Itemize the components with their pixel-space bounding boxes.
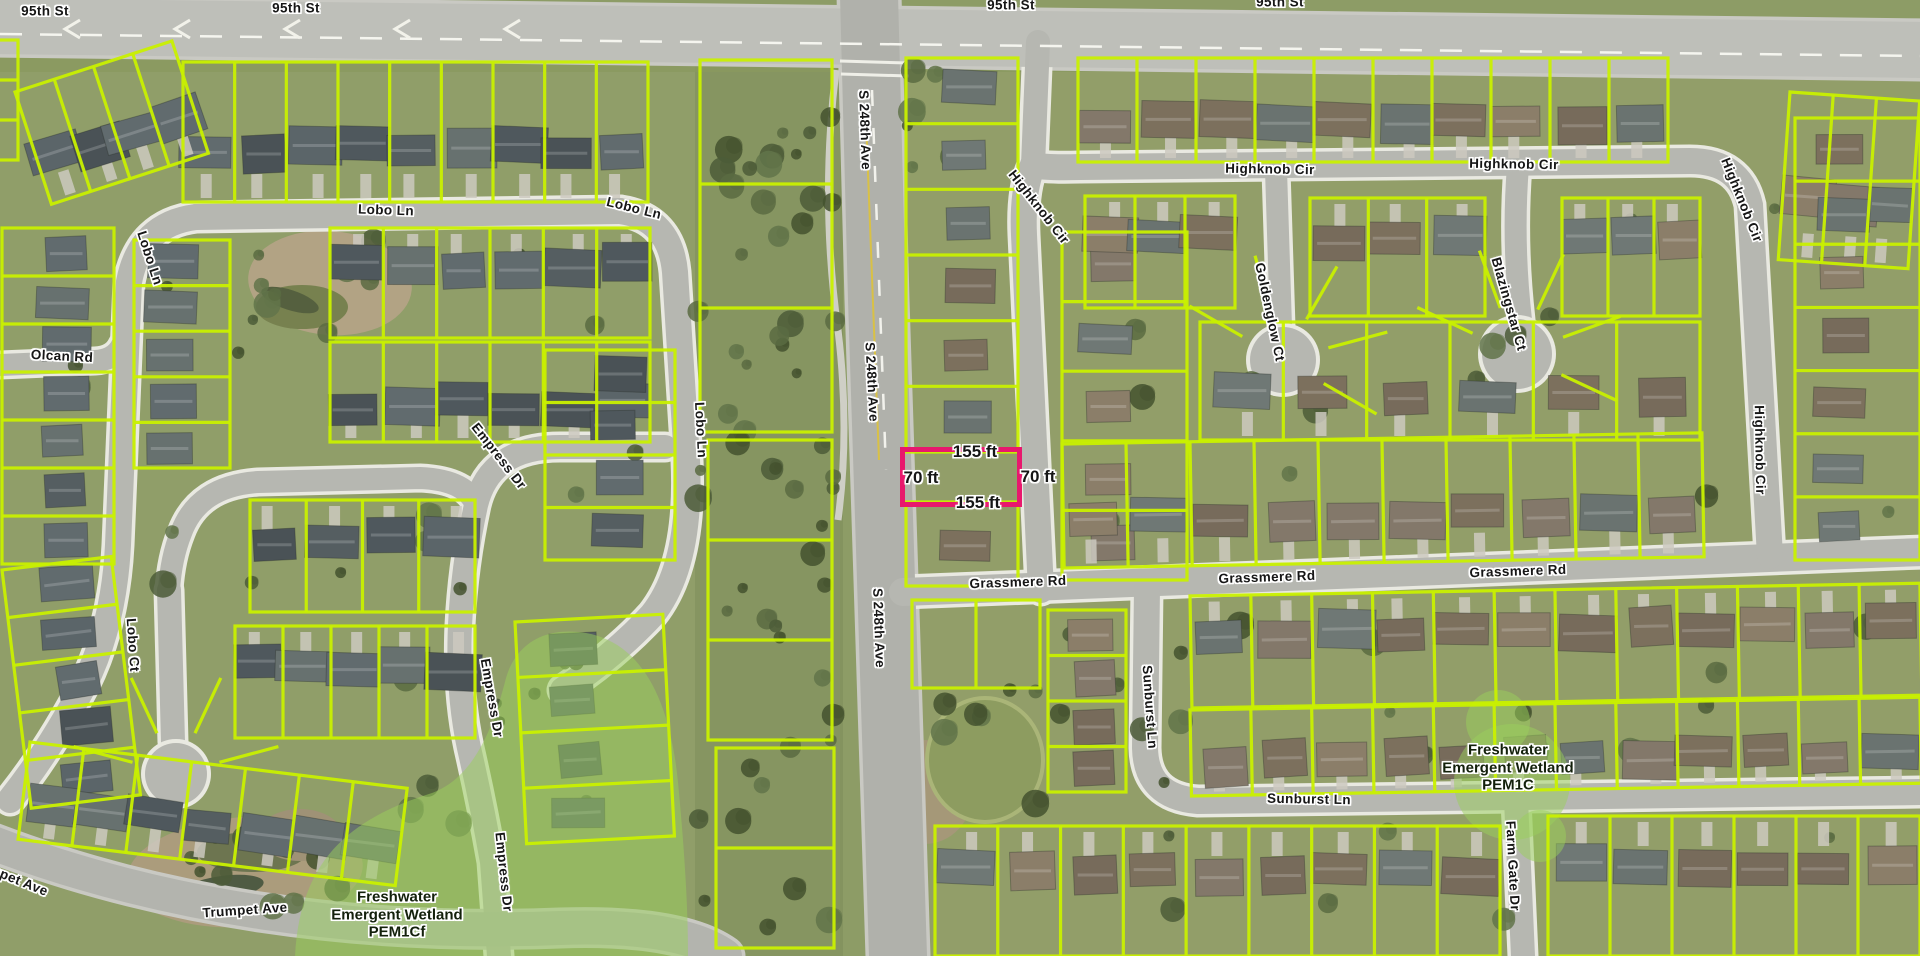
street-label: 95th St xyxy=(21,4,69,19)
street-label: Highknob Cir xyxy=(1752,405,1769,495)
dimension-label: 70 ft xyxy=(904,468,939,488)
dimension-label: 155 ft xyxy=(956,493,1000,513)
street-label: 95th St xyxy=(1256,0,1304,10)
street-label: Lobo Ln xyxy=(692,402,710,459)
wetland-label: FreshwaterEmergent WetlandPEM1Cf xyxy=(331,888,462,941)
street-label: Lobo Ln xyxy=(358,202,415,219)
wetland-label-line: Freshwater xyxy=(331,888,462,906)
wetland-label-line: PEM1Cf xyxy=(331,924,462,942)
wetland-label-line: Emergent Wetland xyxy=(1442,759,1573,777)
street-label: Highknob Cir xyxy=(1225,161,1315,178)
street-label: Sunburst Ln xyxy=(1267,791,1351,807)
wetland-label: FreshwaterEmergent WetlandPEM1C xyxy=(1442,741,1573,794)
wetland-label-line: Emergent Wetland xyxy=(331,906,462,924)
street-label: Highknob Cir xyxy=(1469,156,1559,173)
street-label: 95th St xyxy=(987,0,1035,13)
dimension-label: 155 ft xyxy=(953,442,997,462)
dimension-label: 70 ft xyxy=(1021,467,1056,487)
street-label: S 248th Ave xyxy=(870,588,888,668)
map-viewport[interactable]: 95th St95th St95th St95th StLobo LnLobo … xyxy=(0,0,1920,956)
street-label: 95th St xyxy=(272,1,320,16)
street-label: S 248th Ave xyxy=(856,90,874,170)
wetland-label-line: PEM1C xyxy=(1442,777,1573,795)
wetland-label-line: Freshwater xyxy=(1442,741,1573,759)
street-label: Olcan Rd xyxy=(30,347,93,365)
